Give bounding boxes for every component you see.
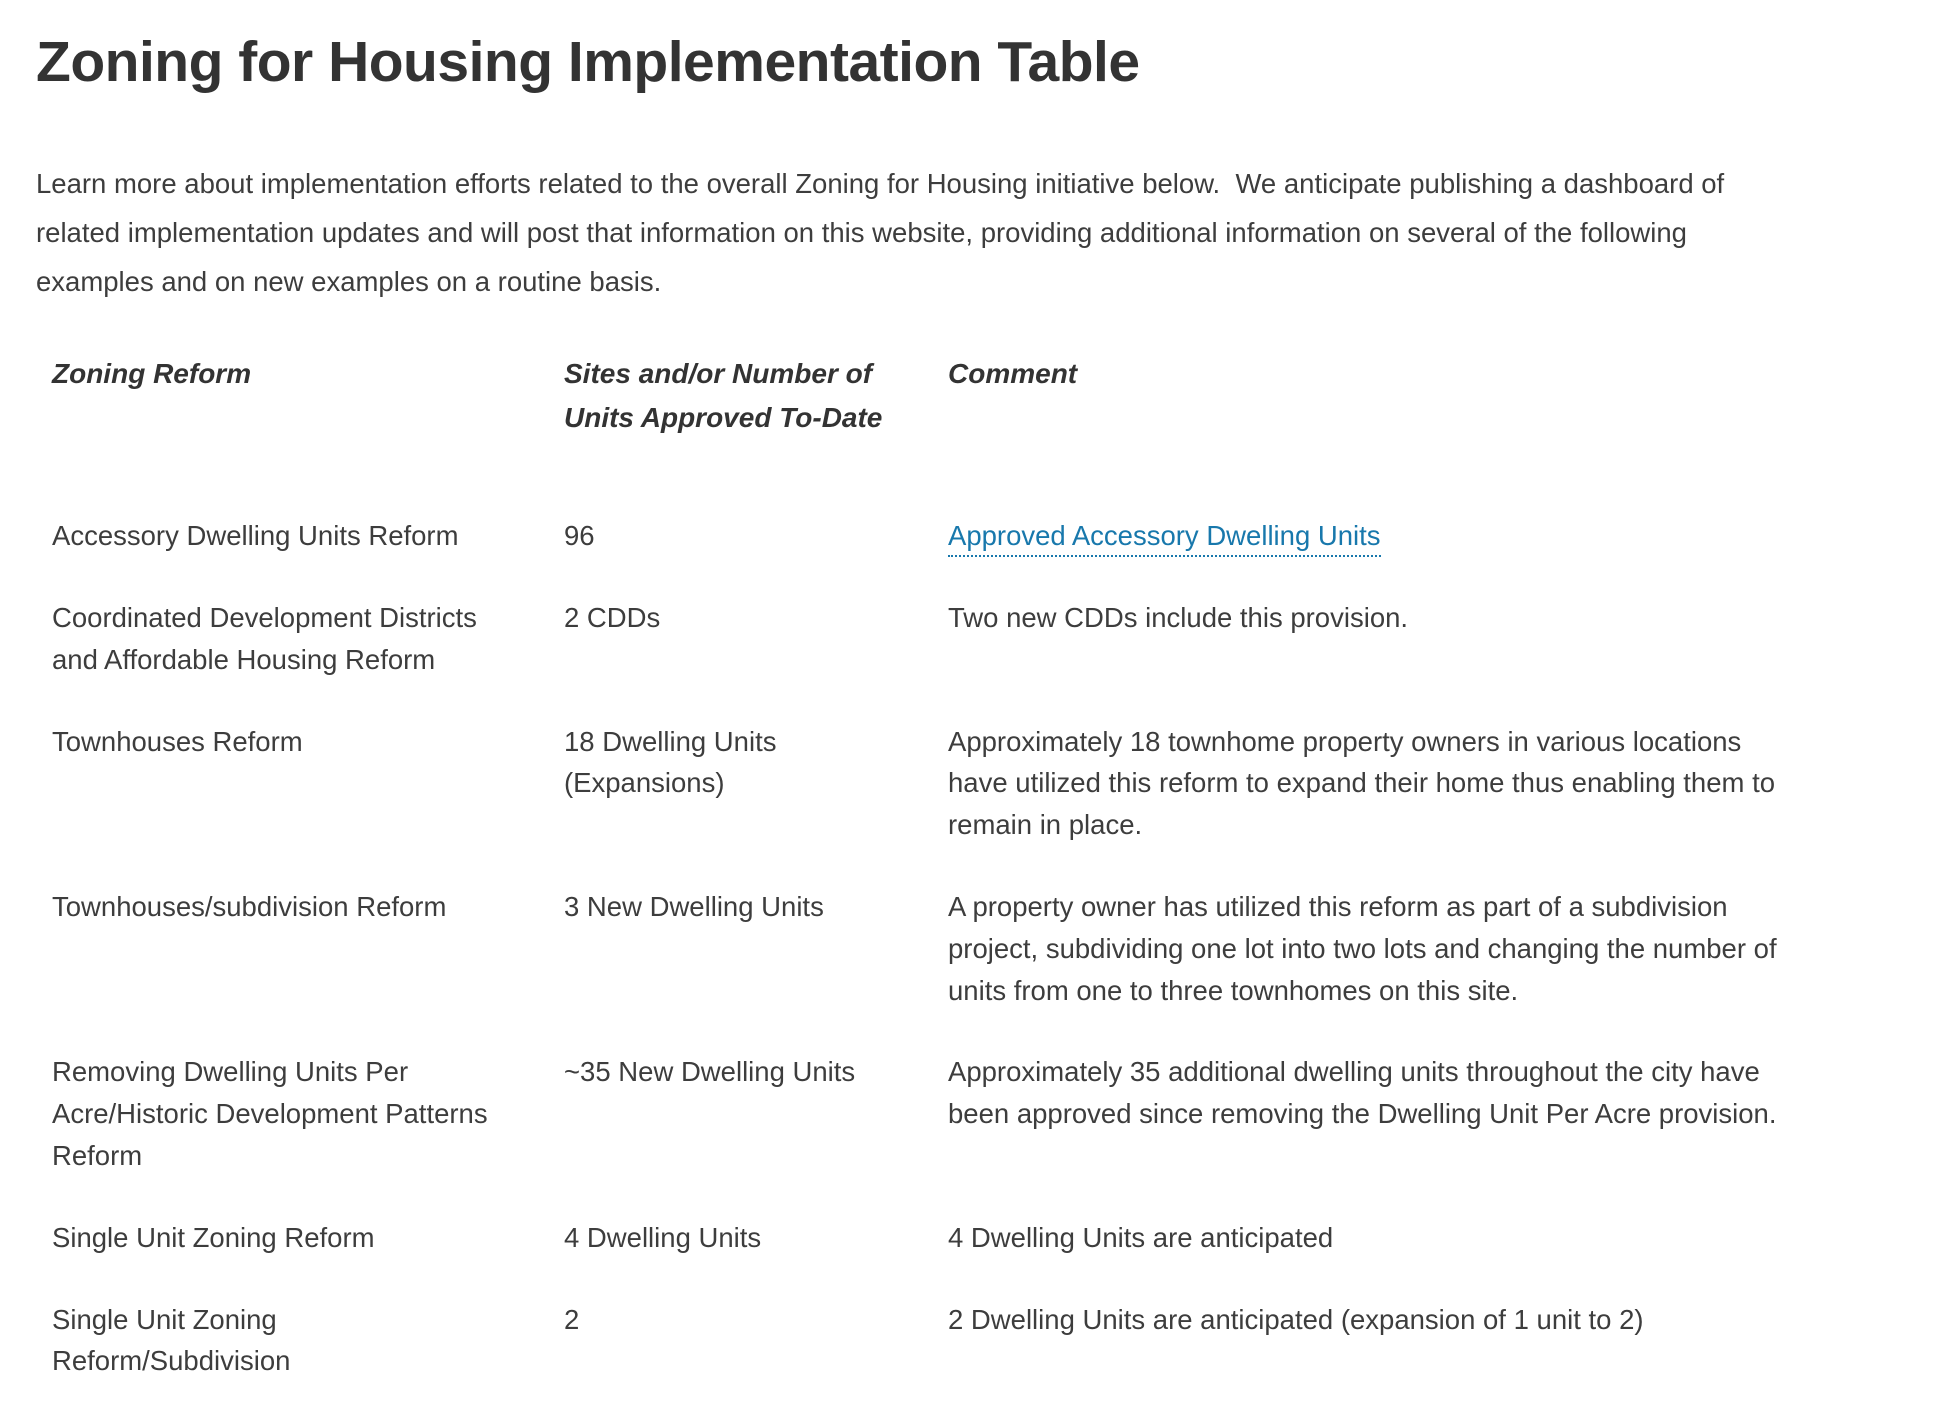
comment-cell: 4 Dwelling Units are anticipated	[948, 1217, 1793, 1299]
table-row: Townhouses Reform 18 Dwelling Units (Exp…	[52, 721, 1793, 886]
column-header-sites-units: Sites and/or Number of Units Approved To…	[564, 352, 948, 515]
sites-cell: 2	[564, 1299, 948, 1422]
intro-paragraph: Learn more about implementation efforts …	[36, 160, 1796, 306]
comment-cell: A property owner has utilized this refor…	[948, 886, 1793, 1051]
sites-cell: 4 Dwelling Units	[564, 1217, 948, 1299]
comment-cell: Two new CDDs include this provision.	[948, 597, 1793, 721]
sites-cell: 2 CDDs	[564, 597, 948, 721]
table-row: Townhouses/subdivision Reform 3 New Dwel…	[52, 886, 1793, 1051]
table-row: Coordinated Development Districts and Af…	[52, 597, 1793, 721]
reform-cell: Single Unit Zoning Reform/Subdivision	[52, 1299, 564, 1422]
page-title: Zoning for Housing Implementation Table	[36, 28, 1906, 96]
column-header-comment: Comment	[948, 352, 1793, 515]
comment-cell: Approximately 35 additional dwelling uni…	[948, 1051, 1793, 1216]
sites-cell: ~35 New Dwelling Units	[564, 1051, 948, 1216]
sites-cell: 3 New Dwelling Units	[564, 886, 948, 1051]
table-row: Removing Dwelling Units Per Acre/Histori…	[52, 1051, 1793, 1216]
comment-cell: Approved Accessory Dwelling Units	[948, 515, 1793, 597]
table-header-row: Zoning Reform Sites and/or Number of Uni…	[52, 352, 1793, 515]
comment-cell: 2 Dwelling Units are anticipated (expans…	[948, 1299, 1793, 1422]
page-content: Zoning for Housing Implementation Table …	[0, 0, 1942, 1422]
reform-cell: Townhouses/subdivision Reform	[52, 886, 564, 1051]
reform-cell: Single Unit Zoning Reform	[52, 1217, 564, 1299]
comment-cell: Approximately 18 townhome property owner…	[948, 721, 1793, 886]
column-header-zoning-reform: Zoning Reform	[52, 352, 564, 515]
approved-accessory-dwelling-units-link[interactable]: Approved Accessory Dwelling Units	[948, 520, 1381, 557]
reform-cell: Townhouses Reform	[52, 721, 564, 886]
reform-cell: Coordinated Development Districts and Af…	[52, 597, 564, 721]
table-row: Single Unit Zoning Reform 4 Dwelling Uni…	[52, 1217, 1793, 1299]
reform-cell: Removing Dwelling Units Per Acre/Histori…	[52, 1051, 564, 1216]
reform-cell: Accessory Dwelling Units Reform	[52, 515, 564, 597]
implementation-table: Zoning Reform Sites and/or Number of Uni…	[52, 352, 1793, 1422]
sites-cell: 18 Dwelling Units (Expansions)	[564, 721, 948, 886]
table-row: Single Unit Zoning Reform/Subdivision 2 …	[52, 1299, 1793, 1422]
table-row: Accessory Dwelling Units Reform 96 Appro…	[52, 515, 1793, 597]
sites-cell: 96	[564, 515, 948, 597]
